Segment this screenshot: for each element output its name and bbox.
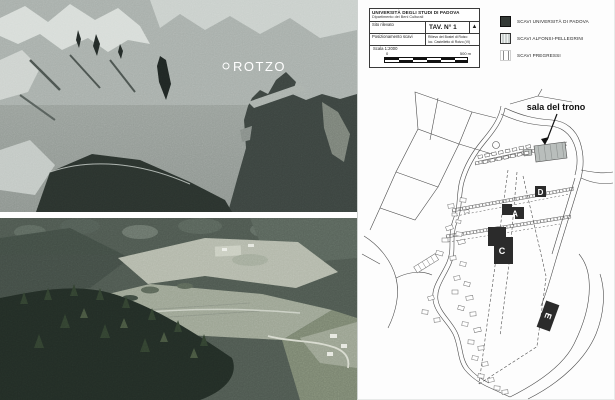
sheet-description: Rilievo del Bostel di Rotzo loc. Castell… — [426, 34, 479, 45]
marker-e-area: E — [537, 300, 560, 331]
legend-item: SCAVI UNIVERSITÀ DI PADOVA — [500, 16, 612, 27]
sala-del-trono-label: sala del trono — [527, 102, 586, 112]
scale-zero: 0 — [386, 52, 388, 57]
aerial-photo-panel — [0, 218, 357, 400]
hatched-square-swatch-icon — [500, 33, 511, 44]
scale-end: 500 m — [460, 52, 471, 57]
marker-a-label: A — [512, 210, 518, 219]
legend-label: SCAVI UNIVERSITÀ DI PADOVA — [517, 19, 589, 24]
site-plan: D A C E sala del trono — [360, 88, 615, 400]
title-block: UNIVERSITÀ DEGLI STUDI DI PADOVA Diparti… — [369, 8, 480, 68]
satellite-image: ROTZO — [0, 0, 357, 212]
parcel-boundaries — [362, 89, 572, 328]
department-name: Dipartimento dei Beni Culturali — [372, 15, 477, 19]
annotation: sala del trono — [527, 102, 586, 145]
figure-page: ROTZO — [0, 0, 615, 400]
excavation-markers: D A C E — [488, 186, 559, 332]
vertical-lines-swatch-icon — [500, 50, 511, 61]
marker-c-label: C — [499, 246, 506, 256]
aerial-photo — [0, 218, 357, 400]
north-arrow-icon: ▲ — [469, 22, 479, 33]
annotation-arrowhead-icon — [541, 137, 549, 145]
legend-label: SCAVI ALFONSI-PELLEGRINI — [517, 36, 583, 41]
scale-label: Scala 1:2000 — [373, 46, 397, 51]
title-block-header: UNIVERSITÀ DEGLI STUDI DI PADOVA Diparti… — [370, 9, 479, 22]
field1-label: Sito rilevato — [370, 22, 425, 34]
scale-section: Scala 1:2000 0 500 m — [370, 46, 479, 66]
drawing-sheet: UNIVERSITÀ DEGLI STUDI DI PADOVA Diparti… — [357, 0, 615, 400]
legend-item: SCAVI ALFONSI-PELLEGRINI — [500, 33, 612, 44]
tav-number: TAV. N° 1 — [426, 22, 469, 33]
legend: SCAVI UNIVERSITÀ DI PADOVA SCAVI ALFONSI… — [500, 16, 612, 67]
legend-item: SCAVI PREGRESSI — [500, 50, 612, 61]
sheet-line2: loc. Castelletto di Rotzo (VI) — [428, 40, 477, 44]
legend-label: SCAVI PREGRESSI — [517, 53, 561, 58]
field2-label: Posizionamento scavi — [370, 34, 425, 45]
satellite-image-panel: ROTZO — [0, 0, 357, 212]
small-enclosure — [493, 142, 500, 149]
scale-bar — [384, 57, 468, 63]
dark-square-swatch-icon — [500, 16, 511, 27]
marker-d-label: D — [538, 188, 544, 197]
